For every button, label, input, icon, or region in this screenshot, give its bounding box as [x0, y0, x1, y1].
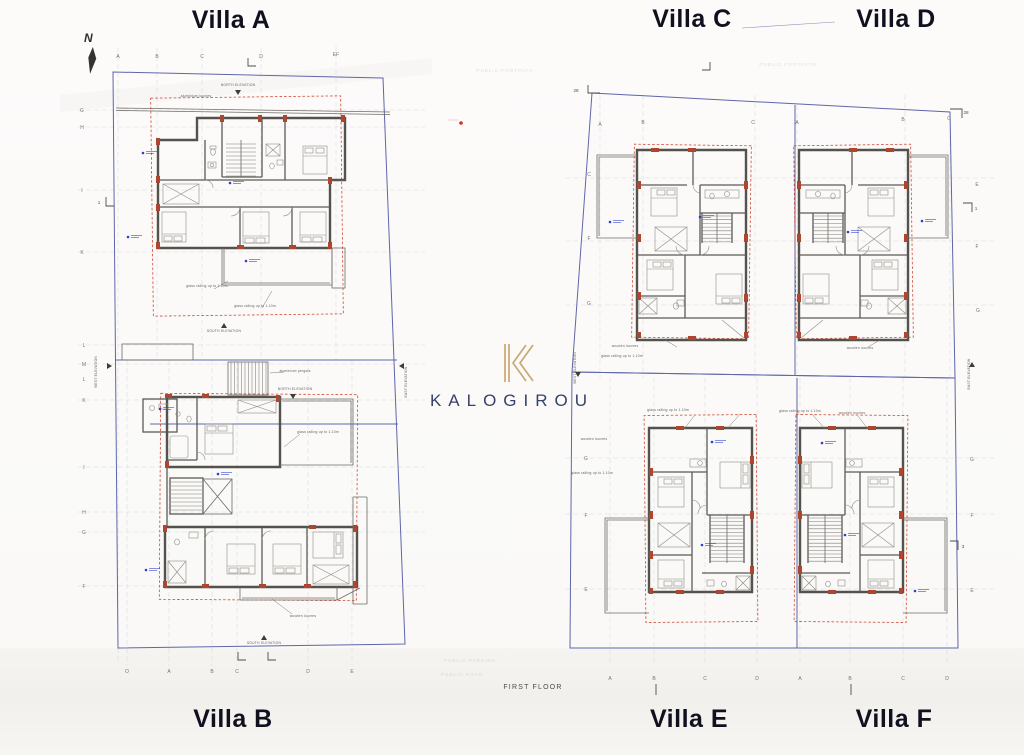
annotation-label: wooden louvres: [847, 346, 874, 350]
setback-line-d: [794, 144, 914, 339]
stairs-f: [808, 515, 842, 563]
spot-level-marker: [847, 231, 862, 234]
annotation-label: glass railing up to 1.10m: [297, 430, 339, 434]
scan-shade-bottom: [0, 648, 1024, 706]
balcony-a: [222, 248, 345, 288]
grid-letter: A: [116, 54, 120, 60]
stairs-b: [170, 478, 232, 514]
spot-level-marker: [229, 182, 244, 185]
faint-label: PUBLIC FOOTPATH: [759, 62, 816, 67]
spot-level-marker: [245, 260, 260, 263]
annotation-label: NORTH ELEVATION: [221, 83, 256, 87]
annotation-label: glass railing up to 1.10m: [779, 409, 821, 413]
spot-level-marker: [142, 152, 157, 155]
villa-e-label: Villa E: [650, 705, 728, 734]
grid-letter: E: [975, 182, 979, 188]
grid-letter: F: [975, 244, 978, 250]
columns-f: [798, 426, 903, 594]
section-label: 1: [98, 200, 101, 205]
grid-letter: G: [587, 301, 591, 307]
plot-boundary-cd: [572, 93, 955, 378]
villa-a-plan: [151, 96, 345, 316]
annotation-label: NORTH ELEVATION: [278, 387, 313, 391]
grid-lines-left: [78, 46, 425, 666]
spot-level-marker: [701, 544, 716, 547]
spot-level-marker: [821, 442, 836, 445]
annotation-label: EAST ELEVATION: [967, 358, 971, 389]
spot-level-marker: [217, 473, 232, 476]
furniture-a: [162, 144, 327, 243]
annotation-label: wooden louvres: [290, 614, 317, 618]
grid-letter: G: [976, 308, 980, 314]
grid-letter: C: [901, 676, 905, 682]
annotation-label: wooden louvres: [839, 411, 866, 415]
site-division-lines-right: [795, 105, 797, 648]
annotation-label: SOUTH ELEVATION: [247, 641, 282, 645]
furniture-b: [150, 400, 350, 584]
north-arrow-icon: [86, 47, 98, 75]
furniture-d: [801, 185, 906, 338]
grid-letter: A: [795, 120, 799, 126]
annotation-label: WEST ELEVATION: [94, 356, 98, 388]
columns-a: [156, 115, 345, 249]
section-label: 28: [573, 88, 579, 93]
grid-letter: D: [755, 676, 759, 682]
brand-name: KALOGIROU: [392, 391, 632, 411]
grid-letter: I: [83, 465, 84, 471]
villa-f-label: Villa F: [856, 705, 933, 734]
villa-e-plan: [605, 414, 758, 622]
grid-letter: I: [81, 188, 82, 194]
spot-level-marker: [844, 534, 859, 537]
grid-letter: M: [82, 362, 86, 368]
spot-level-marker: [921, 220, 936, 223]
annotation-label: glass railing up to 1.10m: [647, 408, 689, 412]
faint-label: PUBLIC FOOTPATH: [476, 68, 533, 73]
floorplan-sheet: ABCDEFGHIKLMLKIHGFOABCDEABCABCCFGEFGGFEG…: [0, 0, 1024, 755]
section-label: 28: [963, 110, 969, 115]
spot-level-marker: [127, 236, 142, 239]
columns-b: [163, 394, 357, 588]
grid-letter: C: [751, 120, 755, 126]
annotation-label: glass railing up to 1.10m: [234, 304, 276, 308]
north-label: N: [84, 31, 93, 45]
annotation-label: glass railing up to 1.10m: [186, 284, 228, 288]
grid-letter: B: [155, 54, 159, 60]
site-division-lines-left: [115, 360, 398, 424]
grid-letter: B: [641, 120, 645, 126]
grid-letter: O: [125, 669, 129, 675]
grid-letter: G: [584, 456, 588, 462]
grid-letter: H: [80, 125, 84, 131]
grid-letter: H: [82, 510, 86, 516]
spot-level-marker: [145, 569, 160, 572]
annotation-label: glass railing up to 1.10m: [571, 471, 613, 475]
grid-letter: F: [82, 584, 85, 590]
terrace-d: [908, 155, 948, 238]
grid-letter: F: [970, 513, 973, 519]
section-label: 1: [975, 206, 978, 211]
grid-letter: F: [587, 236, 590, 242]
site-step-block: [122, 344, 193, 360]
grid-letter: G: [970, 457, 974, 463]
terrace-f: [903, 518, 947, 613]
spot-level-marker: [914, 590, 929, 593]
kalogirou-logo: KALOGIROU: [392, 342, 632, 411]
kalogirou-monogram-icon: [482, 342, 542, 384]
grid-letter: EF: [333, 52, 339, 58]
faint-label: PUBLIC ROAD: [441, 672, 483, 677]
grid-letter: G: [80, 108, 84, 114]
grid-letter: G: [82, 530, 86, 536]
grid-letter: L: [83, 343, 86, 349]
villa-c-plan: [597, 144, 751, 347]
villa-d-plan: [794, 144, 948, 347]
grid-letter: C: [947, 116, 951, 122]
grid-letter: K: [82, 398, 86, 404]
villa-b-plan: [143, 393, 367, 614]
annotation-label: wooden louvres: [581, 437, 608, 441]
grid-letter: C: [587, 172, 591, 178]
grid-letter: C: [235, 669, 239, 675]
site-left: [78, 46, 425, 666]
stairs-d: [813, 213, 843, 243]
grid-letter: L: [83, 377, 86, 383]
grid-letter: A: [598, 122, 602, 128]
label-divider-line: [742, 22, 835, 28]
section-label: 3: [962, 544, 965, 549]
spot-level-marker: [711, 441, 726, 444]
annotation-label: SOUTH ELEVATION: [207, 329, 242, 333]
grid-letter: C: [200, 54, 204, 60]
faint-label: PUBLIC PARKING: [444, 658, 496, 663]
annotation-label: aluminium pergola: [279, 369, 310, 373]
villa-d-label: Villa D: [856, 5, 935, 34]
grid-letter: D: [259, 54, 263, 60]
grid-letter: F: [584, 513, 587, 519]
furniture-f: [802, 459, 894, 590]
annotation-label: aluminium louvres: [181, 94, 212, 98]
grid-letter: E: [584, 587, 588, 593]
villa-b-label: Villa B: [193, 705, 272, 734]
grid-letter: K: [80, 250, 84, 256]
stairs-a: [226, 140, 256, 177]
red-dot: [459, 121, 463, 125]
aluminium-pergola: [228, 362, 284, 395]
spot-level-marker: [609, 221, 624, 224]
grid-letter: D: [945, 676, 949, 682]
plot-boundary-ef: [570, 372, 958, 648]
villa-a-label: Villa A: [192, 6, 271, 35]
grid-letter: D: [306, 669, 310, 675]
floor-title: FIRST FLOOR: [503, 684, 562, 691]
villa-c-label: Villa C: [652, 5, 731, 34]
grid-letter: C: [703, 676, 707, 682]
